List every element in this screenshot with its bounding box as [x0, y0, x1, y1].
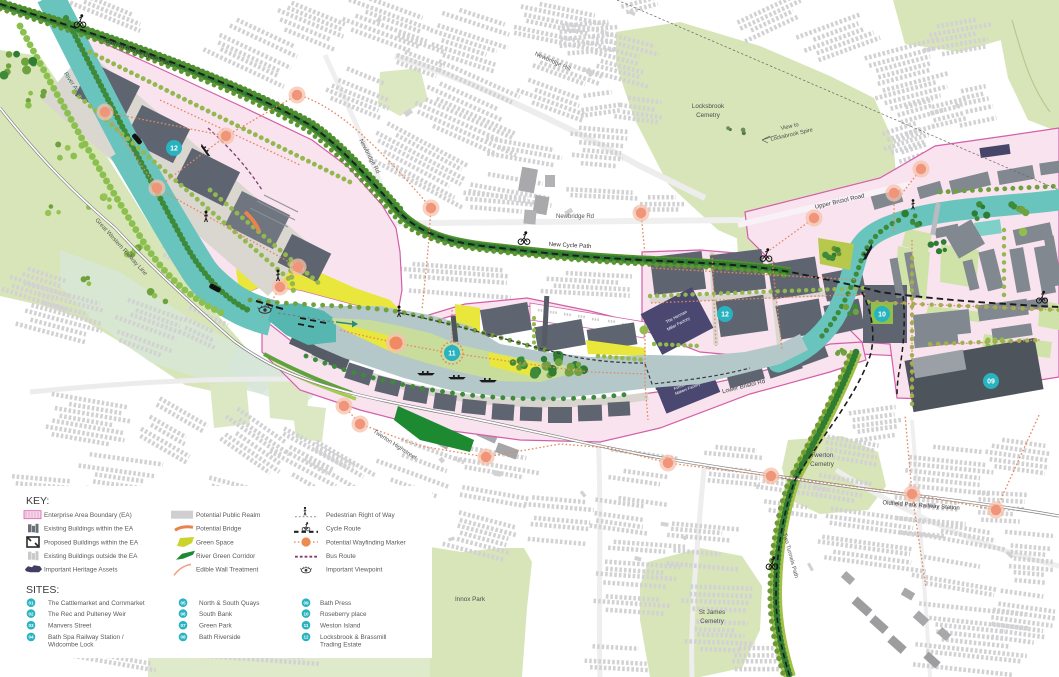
svg-text:Potential Bridge: Potential Bridge [196, 526, 242, 533]
svg-text:10: 10 [303, 611, 309, 616]
svg-text:04: 04 [28, 635, 34, 640]
svg-text:Cemetry: Cemetry [700, 618, 725, 625]
svg-text:Edible Wall Treatment: Edible Wall Treatment [196, 567, 258, 574]
svg-text:Green Park: Green Park [199, 622, 232, 629]
svg-text:11: 11 [304, 623, 309, 628]
svg-text:Important Viewpoint: Important Viewpoint [326, 567, 383, 574]
svg-text:Trading Estate: Trading Estate [320, 642, 362, 649]
svg-text:Cycle Route: Cycle Route [326, 526, 361, 533]
svg-text:St James: St James [699, 609, 725, 616]
svg-text:Important Heritage Assets: Important Heritage Assets [44, 567, 118, 574]
svg-text:Enterprise Area Boundary (EA): Enterprise Area Boundary (EA) [44, 512, 132, 519]
svg-text:The Cattlemarket and Cornmarke: The Cattlemarket and Cornmarket [48, 600, 145, 607]
svg-text:Green Space: Green Space [196, 539, 234, 546]
svg-text:Proposed Buildings within the: Proposed Buildings within the EA [44, 539, 139, 546]
svg-text:12: 12 [303, 635, 309, 640]
svg-text:Cemetry: Cemetry [810, 461, 835, 468]
svg-text:Newbridge Rd: Newbridge Rd [556, 214, 594, 220]
svg-text:Locksbrook & Brassmill: Locksbrook & Brassmill [320, 634, 386, 641]
svg-text:Roseberry place: Roseberry place [320, 611, 367, 618]
svg-text:Existing Buildings outside the: Existing Buildings outside the EA [44, 553, 138, 560]
svg-text:Bath Press: Bath Press [320, 600, 351, 607]
svg-text:Innox Park: Innox Park [455, 596, 486, 603]
svg-text:Pedestrian Right of Way: Pedestrian Right of Way [326, 512, 395, 519]
svg-text:09: 09 [303, 600, 309, 605]
svg-text:07: 07 [180, 623, 186, 628]
svg-text:SITES:: SITES: [26, 584, 59, 596]
svg-text:South Bank: South Bank [199, 611, 233, 618]
svg-text:Widcombe Lock: Widcombe Lock [48, 642, 94, 649]
svg-text:Bath Spa Railway Station /: Bath Spa Railway Station / [48, 634, 124, 641]
svg-text:Twerton: Twerton [811, 452, 834, 459]
svg-text:North & South Quays: North & South Quays [199, 600, 259, 607]
svg-text:11: 11 [448, 350, 456, 357]
svg-text:Potential Wayfinding Marker: Potential Wayfinding Marker [326, 539, 407, 546]
svg-text:River Green Corridor: River Green Corridor [196, 553, 256, 560]
svg-text:12: 12 [721, 311, 729, 318]
svg-text:Potential Public Realm: Potential Public Realm [196, 512, 260, 519]
svg-text:Bus Route: Bus Route [326, 553, 356, 560]
svg-text:Bath Riverside: Bath Riverside [199, 634, 241, 641]
svg-text:12: 12 [170, 145, 178, 152]
svg-text:06: 06 [180, 611, 186, 616]
svg-text:03: 03 [28, 623, 34, 628]
svg-text:08: 08 [180, 635, 186, 640]
svg-text:Weston Island: Weston Island [320, 622, 361, 629]
svg-text:09: 09 [987, 378, 995, 385]
svg-text:Cemetry: Cemetry [696, 112, 721, 119]
svg-text:Existing Buildings within the: Existing Buildings within the EA [44, 526, 134, 533]
svg-text:Locksbrook: Locksbrook [692, 103, 725, 110]
svg-text:01: 01 [28, 600, 34, 605]
svg-text:The Rec and Pulteney Weir: The Rec and Pulteney Weir [48, 611, 127, 618]
svg-text:02: 02 [28, 611, 34, 616]
svg-text:05: 05 [180, 600, 186, 605]
svg-text:10: 10 [878, 311, 886, 318]
svg-text:KEY:: KEY: [26, 495, 49, 507]
svg-text:Manvers Street: Manvers Street [48, 622, 92, 629]
